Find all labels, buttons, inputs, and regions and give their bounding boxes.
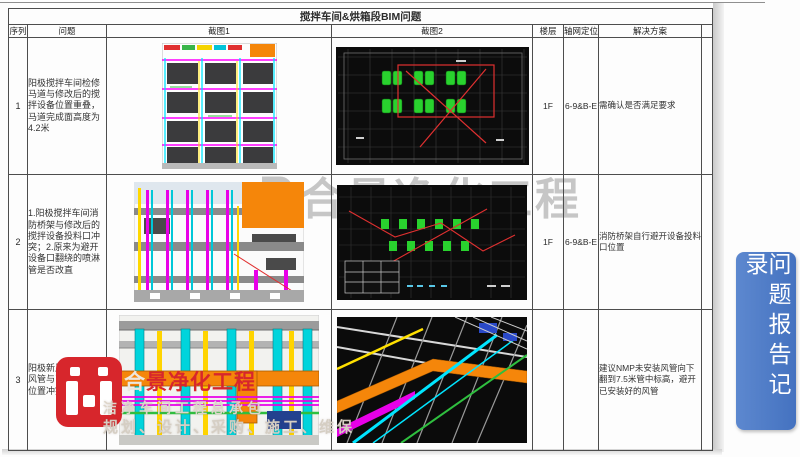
row3-solution: 建议NMP未安装风管向下翻到7.5米管中标高，避开已安装好的风管 [599, 310, 702, 451]
table-row: 2 1.阳极搅拌车间消防桥架与修改后的搅拌设备投料口冲突；2.原来为避开设备口翻… [9, 175, 713, 310]
row3-spare-cell [702, 310, 713, 451]
row2-seq: 2 [9, 175, 28, 310]
company-services: 规划、设计、采购、施工、维保 [103, 416, 355, 437]
row3-axis [564, 310, 599, 451]
row2-solution: 消防桥架自行避开设备投料口位置 [599, 175, 702, 310]
col-header-problem: 问题 [28, 25, 107, 38]
company-subtitle: 洁净车间工程总承包 [103, 398, 265, 418]
col-header-spare [702, 25, 713, 38]
row1-problem: 阳极搅拌车间检修马道与修改后的搅拌设备位置重叠，马道完成面高度为4.2米 [28, 38, 107, 175]
row1-floor: 1F [533, 38, 564, 175]
header-row: 序列 问题 截图1 截图2 楼层 轴网定位 解决方案 [9, 25, 713, 38]
row2-spare-cell [702, 175, 713, 310]
row3-floor [533, 310, 564, 451]
col-header-floor: 楼层 [533, 25, 564, 38]
col-header-seq: 序列 [9, 25, 28, 38]
table-row: 1 阳极搅拌车间检修马道与修改后的搅拌设备位置重叠，马道完成面高度为4.2米 [9, 38, 713, 175]
col-header-screenshot1: 截图1 [107, 25, 332, 38]
row3-seq: 3 [9, 310, 28, 451]
row1-seq: 1 [9, 38, 28, 175]
company-brand-text: 合景净化工程 [124, 366, 256, 396]
row3-screenshot2-image [332, 317, 532, 443]
row2-problem: 1.阳极搅拌车间消防桥架与修改后的搅拌设备投料口冲突；2.原来为避开设备口翻绕的… [28, 175, 107, 310]
row2-screenshot1-image [107, 182, 331, 302]
row1-solution: 需确认是否满足要求 [599, 38, 702, 175]
col-header-axis: 轴网定位 [564, 25, 599, 38]
row1-spare-cell [702, 38, 713, 175]
col-header-solution: 解决方案 [599, 25, 702, 38]
company-brand-name: 景净化工程 [146, 371, 256, 394]
row2-floor: 1F [533, 175, 564, 310]
page-top-edge [0, 2, 765, 3]
table-title: 搅拌车间&烘箱段BIM问题 [9, 9, 713, 25]
row1-axis: 6-9&B-E [564, 38, 599, 175]
row2-screenshot2-image [332, 185, 532, 300]
company-brand-prefix: 合 [124, 371, 146, 394]
row1-screenshot1-image [107, 43, 331, 169]
page-right-shadow [713, 3, 724, 452]
row1-screenshot2-image [332, 47, 532, 165]
side-banner: 问题报告记录 [736, 252, 796, 430]
row2-axis: 6-9&B-E [564, 175, 599, 310]
col-header-screenshot2: 截图2 [332, 25, 533, 38]
side-banner-text: 问题报告记录 [743, 252, 789, 430]
report-page: 合景净化工程 搅拌车间&烘箱段BIM问题 序列 问题 截图1 截图2 楼层 轴网… [0, 0, 800, 457]
